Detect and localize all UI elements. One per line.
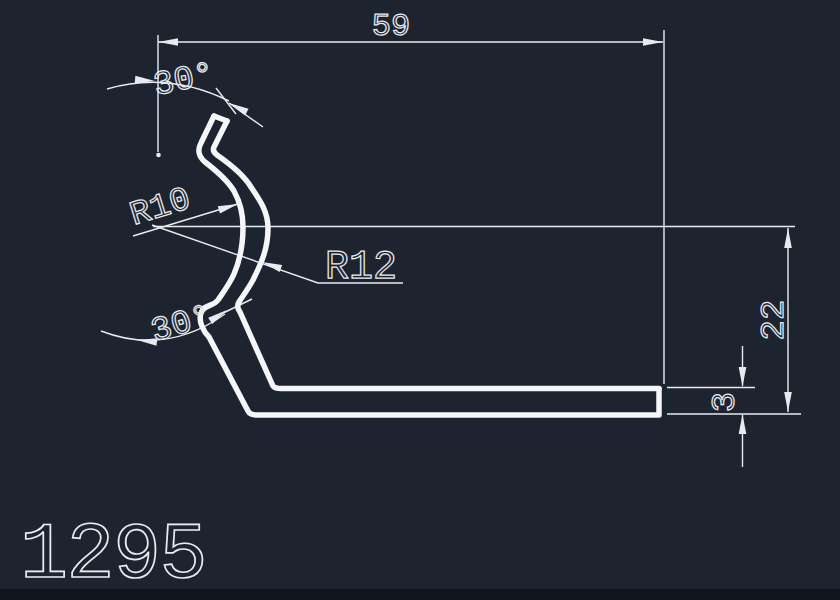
cad-viewport: 59 30° R10 R12 30° 22 3 1295 — [0, 0, 840, 600]
part-number: 1295 — [20, 510, 206, 600]
dim-label-radius-outer: R12 — [325, 245, 397, 290]
defpoint-dot — [157, 153, 160, 156]
cad-canvas: 59 30° R10 R12 30° 22 3 1295 — [0, 0, 840, 600]
dim-label-width: 59 — [372, 8, 410, 45]
dim-label-height: 22 — [755, 300, 793, 341]
dim-label-thickness: 3 — [706, 392, 744, 412]
